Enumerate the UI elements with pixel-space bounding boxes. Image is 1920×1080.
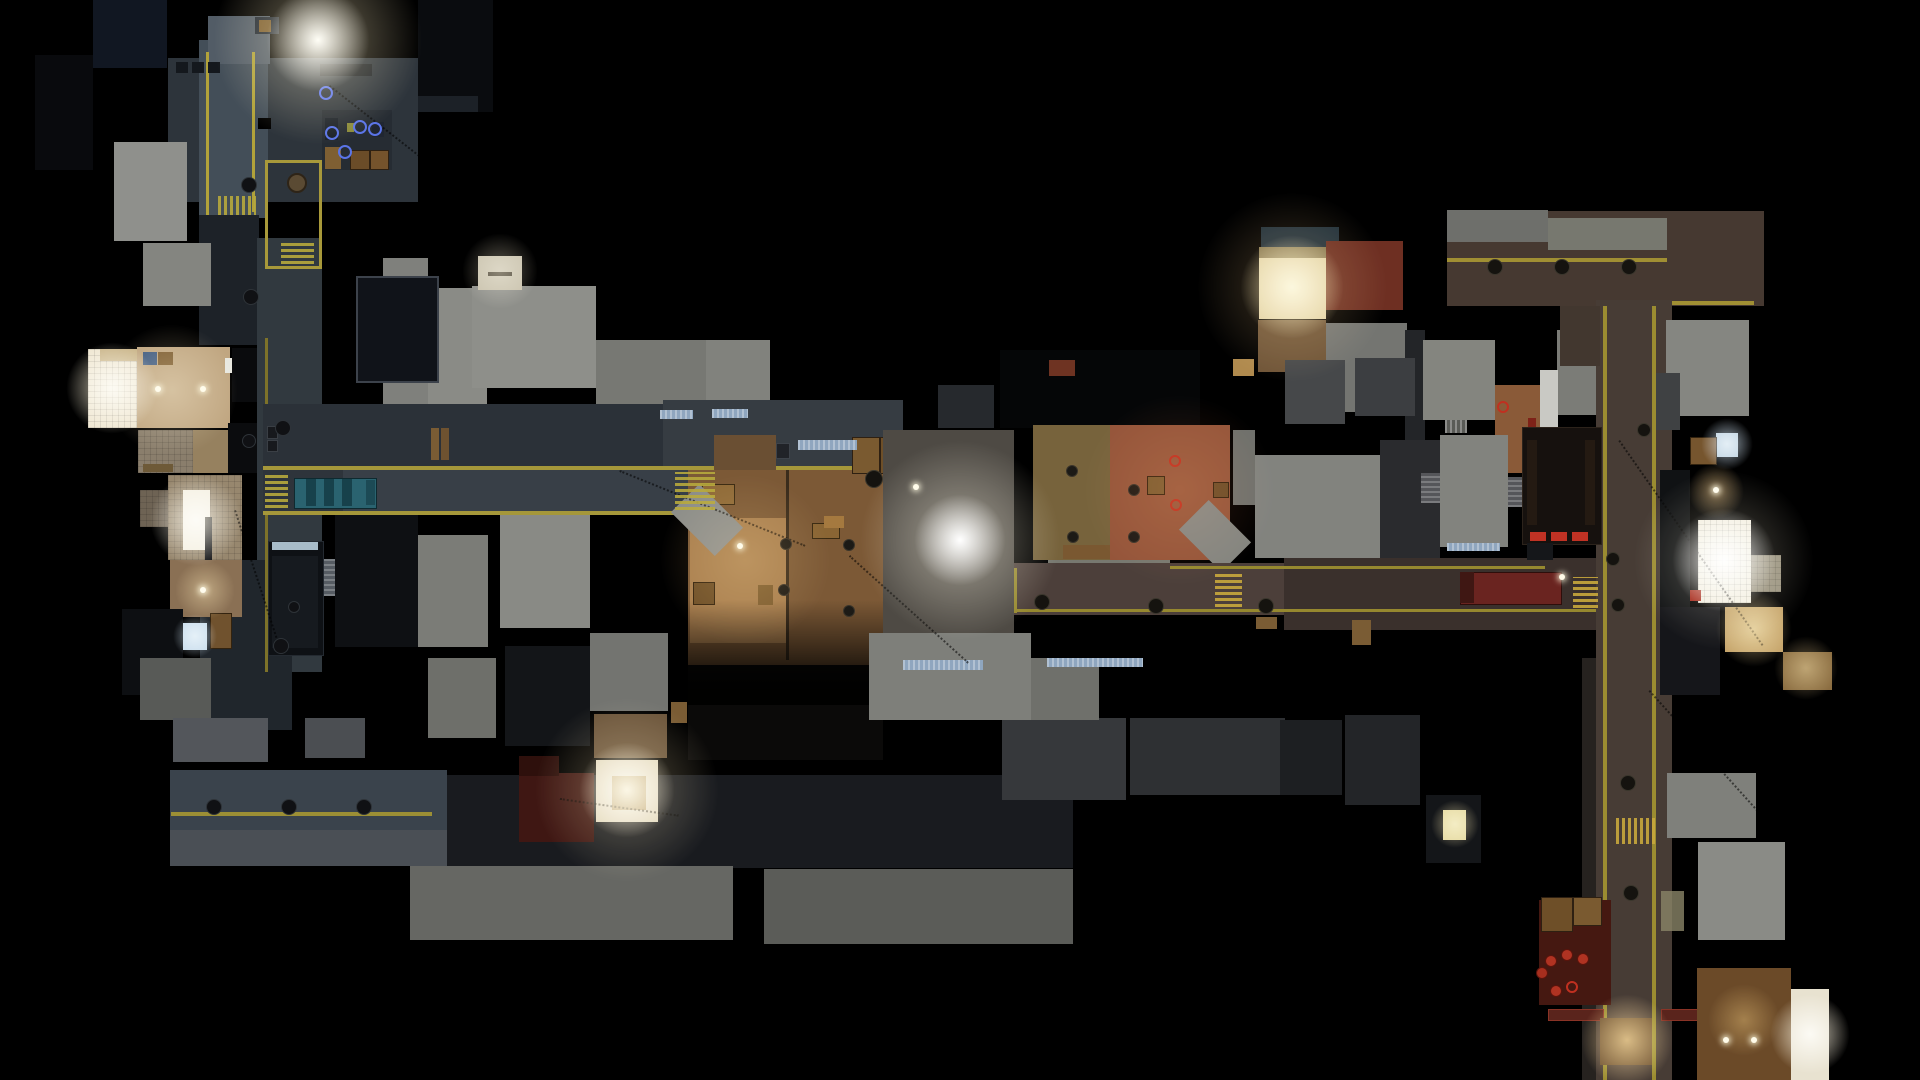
- roofs-mid-b1: [1002, 718, 1126, 800]
- building-s5: [428, 658, 496, 738]
- dim-roof-wse1: [1345, 715, 1420, 805]
- room-blue-white: [183, 623, 207, 650]
- plaza-north-roofline: [320, 64, 372, 76]
- awning-sd2: [1047, 658, 1143, 667]
- vent-fan: [1066, 465, 1078, 477]
- bus-rib-3: [342, 479, 352, 506]
- dark-truck-tail-2: [1551, 532, 1567, 541]
- manhole: [273, 638, 289, 654]
- lamp-dot: [913, 484, 919, 490]
- manhole: [241, 177, 257, 193]
- room-grid-small: [140, 490, 168, 527]
- manhole: [206, 799, 222, 815]
- bus-rib-2: [324, 479, 334, 506]
- building-top-gray-big: [472, 286, 596, 388]
- building-s2: [500, 515, 590, 628]
- lit-bits-e: [1661, 891, 1684, 931]
- barrel-red: [1536, 967, 1548, 979]
- spawn-ring-red: [1169, 455, 1181, 467]
- spawn-ring-red: [1170, 499, 1182, 511]
- dark-truck-rack-w: [1527, 440, 1537, 525]
- vent-fan: [778, 584, 790, 596]
- bench-d1: [1256, 617, 1277, 629]
- crates-e: [1690, 437, 1717, 465]
- brick-room-tr: [1326, 241, 1403, 310]
- pillar-white-rm: [1540, 370, 1558, 430]
- building-top-gray-2: [596, 340, 706, 408]
- crate-x-salmon-1: [1147, 476, 1165, 495]
- crosswalk-hatch-box: [281, 241, 314, 264]
- graystrip-tr1: [1447, 210, 1548, 242]
- manhole: [865, 470, 883, 488]
- dark-truck-dolly: [1527, 543, 1553, 560]
- crate-cy-5: [693, 582, 715, 605]
- ac-unit-2: [192, 62, 204, 73]
- faint-roof-nw1: [1285, 360, 1345, 424]
- room-dark-ne: [232, 348, 257, 402]
- crosswalk-h1-west: [265, 472, 288, 508]
- warm-rooms-se: [1697, 968, 1791, 1080]
- lamp-dot: [155, 386, 161, 392]
- crate-se1: [1541, 897, 1573, 932]
- lamp-dot: [1751, 1037, 1757, 1043]
- lit-window-w: [1443, 810, 1466, 840]
- spawn-ring-red: [1497, 401, 1509, 413]
- roofs-mid-b2: [1130, 718, 1285, 795]
- vent-fan: [843, 539, 855, 551]
- center-pave: [883, 430, 1014, 660]
- building-top-gray-3: [706, 340, 770, 408]
- crosswalk-r-south: [1616, 818, 1656, 844]
- graystrip-tr2: [1548, 218, 1667, 250]
- bench-plaza-b: [441, 428, 449, 460]
- building-navy-block: [93, 0, 167, 68]
- manhole: [1623, 885, 1639, 901]
- stairs-rm-c: [1508, 477, 1523, 507]
- spawn-ring-blue: [338, 145, 352, 159]
- building-outlined-dark: [356, 276, 439, 383]
- manhole: [1621, 259, 1637, 275]
- manhole: [1487, 259, 1503, 275]
- awning-pb: [712, 409, 748, 418]
- lit-crate-n: [1233, 359, 1254, 376]
- red-truck-cab: [1460, 572, 1474, 603]
- spawn-ring-blue: [368, 122, 382, 136]
- map-canvas[interactable]: [0, 0, 1920, 1080]
- street-r-upper-pad: [1560, 306, 1600, 366]
- container-se-a: [1548, 1009, 1604, 1021]
- room-dark-e2: [228, 423, 257, 473]
- dark-truck-rack-e: [1585, 440, 1595, 525]
- awning-pa: [660, 410, 693, 419]
- building-black-top-edge: [418, 96, 478, 112]
- cart-cargo: [259, 20, 271, 32]
- crosswalk-h1-mid: [675, 472, 715, 510]
- manhole: [356, 799, 372, 815]
- white-room-e-ext: [1751, 555, 1781, 592]
- spawn-ring-blue: [325, 126, 339, 140]
- courtyard-fade: [688, 600, 883, 705]
- crosswalk-d: [1215, 573, 1242, 607]
- building-sd2: [1031, 658, 1099, 720]
- shadow-center-n: [1000, 350, 1200, 428]
- manhole: [1034, 594, 1050, 610]
- bench-plaza-a: [431, 428, 439, 460]
- vent-fan: [1067, 531, 1079, 543]
- building-s4: [590, 633, 668, 711]
- gray-roof-se1: [1667, 773, 1756, 838]
- gray-roof-rm3: [1440, 435, 1508, 547]
- awning-sd: [903, 660, 983, 670]
- building-sw-gray: [140, 658, 211, 720]
- lane-d-top: [1170, 566, 1545, 569]
- dark-roof-e2: [1656, 373, 1680, 430]
- vent-fan: [1128, 531, 1140, 543]
- room-white-nw-shelf: [100, 349, 137, 361]
- awning-rm3: [1447, 543, 1500, 551]
- crates-stack-low: [210, 613, 232, 649]
- room-brown-s: [594, 714, 667, 758]
- building-bn-1: [173, 718, 268, 762]
- building-dark-left: [35, 55, 93, 170]
- red-box-e: [1690, 590, 1701, 601]
- ac-unit-1: [176, 62, 188, 73]
- white-room-se: [1791, 989, 1829, 1080]
- lit-room-tr: [1259, 258, 1326, 319]
- building-west-1: [114, 142, 187, 241]
- lamp-dot: [1723, 1037, 1729, 1043]
- warm-room-e1: [1725, 607, 1783, 652]
- pad-plaza-2: [267, 440, 278, 452]
- gray-slab-ne: [1233, 430, 1255, 505]
- manhole: [1554, 259, 1570, 275]
- barrel-red: [1550, 985, 1562, 997]
- lamp-dot: [200, 386, 206, 392]
- lamp-dot: [737, 543, 743, 549]
- roofrow-bottom-2: [764, 869, 1073, 944]
- manhole: [1606, 552, 1620, 566]
- building-s1: [418, 535, 488, 647]
- courtyard-top-room: [714, 435, 776, 470]
- sidewalk-bottom: [170, 830, 447, 866]
- bus-rib-1: [306, 479, 316, 506]
- manhole: [242, 434, 256, 448]
- lane-left-west: [206, 52, 209, 215]
- gap-dark-a: [335, 515, 418, 647]
- red-bits-cn: [1049, 360, 1075, 376]
- wall-hole: [258, 118, 271, 129]
- bench-d2: [1352, 620, 1371, 645]
- bench-room-grid: [143, 464, 173, 472]
- stairs-rm-b: [1421, 473, 1440, 503]
- shelf-white-bar: [225, 358, 232, 373]
- crates-plaza-b: [350, 150, 370, 170]
- vent-fan: [843, 605, 855, 617]
- gray-roof-se2: [1698, 842, 1785, 940]
- blue-skylight-e: [1716, 433, 1738, 457]
- manhole: [1637, 423, 1651, 437]
- spawn-ring-red: [1566, 981, 1578, 993]
- lamp-dot: [200, 587, 206, 593]
- dim-roof-wse2: [1280, 720, 1342, 795]
- dark-truck-tail-1: [1530, 532, 1546, 541]
- roofrow-bottom-1: [410, 866, 733, 940]
- manhole: [1620, 775, 1636, 791]
- spawn-ring-blue: [319, 86, 333, 100]
- trailer-truck-windshield: [272, 542, 318, 550]
- vent-fan: [1128, 484, 1140, 496]
- crate-cy-2: [824, 516, 844, 528]
- manhole: [1258, 598, 1274, 614]
- crate-roomtan-brown: [158, 352, 173, 365]
- awning-pc: [798, 440, 857, 450]
- pad-b2: [776, 443, 790, 459]
- dark-e-fill: [1660, 607, 1720, 695]
- pillar-dark: [205, 517, 212, 562]
- manhole: [1611, 598, 1625, 612]
- street-end-pad: [1600, 1018, 1652, 1065]
- bench-s: [671, 702, 687, 723]
- ac-unit-3: [208, 62, 220, 73]
- stairs-pave: [323, 559, 335, 596]
- bus-front: [366, 480, 375, 505]
- gray-roof-rm1: [1423, 340, 1495, 420]
- crate-x-salmon-2: [1213, 482, 1229, 498]
- building-lit-bottom-floor: [612, 776, 646, 810]
- barrel-red: [1561, 949, 1573, 961]
- plaza-mid-pave: [263, 404, 663, 468]
- red-floor-bottom-up: [519, 756, 559, 776]
- desk-row-olive: [1063, 545, 1110, 559]
- manhole: [275, 420, 291, 436]
- bigroof-east: [1255, 455, 1380, 558]
- lamp-dot: [1559, 574, 1565, 580]
- lane-d-bottom: [1017, 609, 1610, 612]
- manhole: [281, 799, 297, 815]
- manhole: [288, 601, 300, 613]
- lamp-dot: [1713, 487, 1719, 493]
- dark-truck-tail-3: [1572, 532, 1588, 541]
- crate-cy-4: [758, 585, 773, 605]
- cable-spool: [287, 173, 307, 193]
- room-tan-mid: [193, 430, 230, 473]
- stairs-rm-a: [1445, 420, 1467, 433]
- warm-room-e2: [1783, 652, 1832, 690]
- crate-roomtan-blue: [143, 352, 157, 365]
- crosswalk-e: [1573, 577, 1598, 608]
- faint-roof-center: [938, 385, 994, 428]
- crate-se2: [1573, 897, 1602, 926]
- faint-roof-nw2: [1355, 358, 1415, 416]
- vent-fan: [780, 538, 792, 550]
- red-floor-bottom: [519, 773, 594, 842]
- barrel-red: [1577, 953, 1589, 965]
- crosswalk-street-left: [218, 196, 256, 215]
- building-lit-small-ridge: [488, 272, 512, 276]
- crates-plaza-c: [370, 150, 389, 170]
- lane-d-left-v: [1014, 568, 1017, 613]
- barrel-red: [1545, 955, 1557, 967]
- building-west-2: [143, 243, 211, 306]
- spawn-ring-blue: [353, 120, 367, 134]
- manhole: [1148, 598, 1164, 614]
- manhole: [243, 289, 259, 305]
- building-s3-dark: [505, 646, 590, 746]
- building-bn-2: [305, 718, 365, 758]
- red-truck-body: [1460, 572, 1562, 605]
